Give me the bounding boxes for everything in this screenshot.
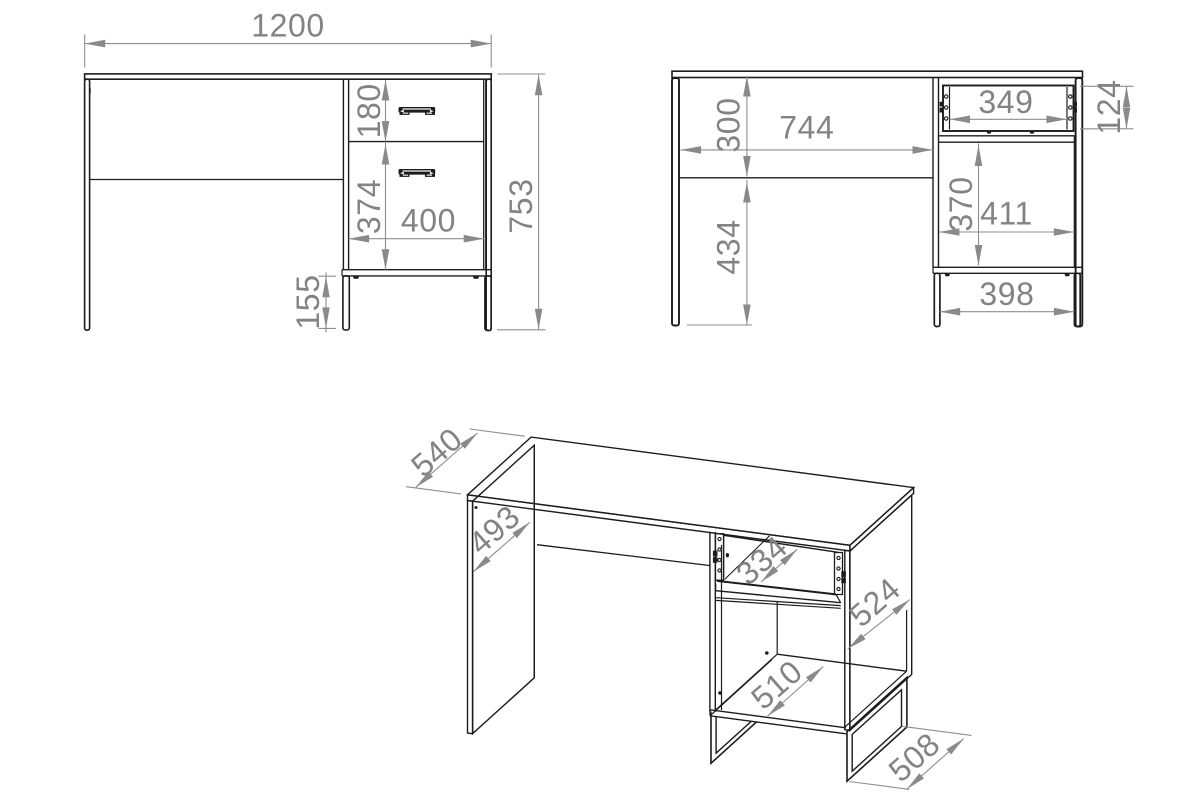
svg-text:374: 374 <box>351 179 387 234</box>
svg-text:411: 411 <box>980 195 1033 231</box>
svg-text:744: 744 <box>779 110 834 146</box>
svg-text:155: 155 <box>290 274 326 329</box>
svg-text:400: 400 <box>401 202 456 238</box>
svg-text:370: 370 <box>943 176 979 231</box>
svg-text:434: 434 <box>711 219 747 274</box>
svg-text:124: 124 <box>1091 79 1127 134</box>
svg-text:349: 349 <box>978 84 1033 120</box>
svg-text:300: 300 <box>711 97 747 152</box>
svg-text:180: 180 <box>351 83 387 138</box>
svg-text:1200: 1200 <box>251 7 325 43</box>
svg-text:398: 398 <box>979 276 1034 312</box>
svg-text:753: 753 <box>503 178 539 233</box>
